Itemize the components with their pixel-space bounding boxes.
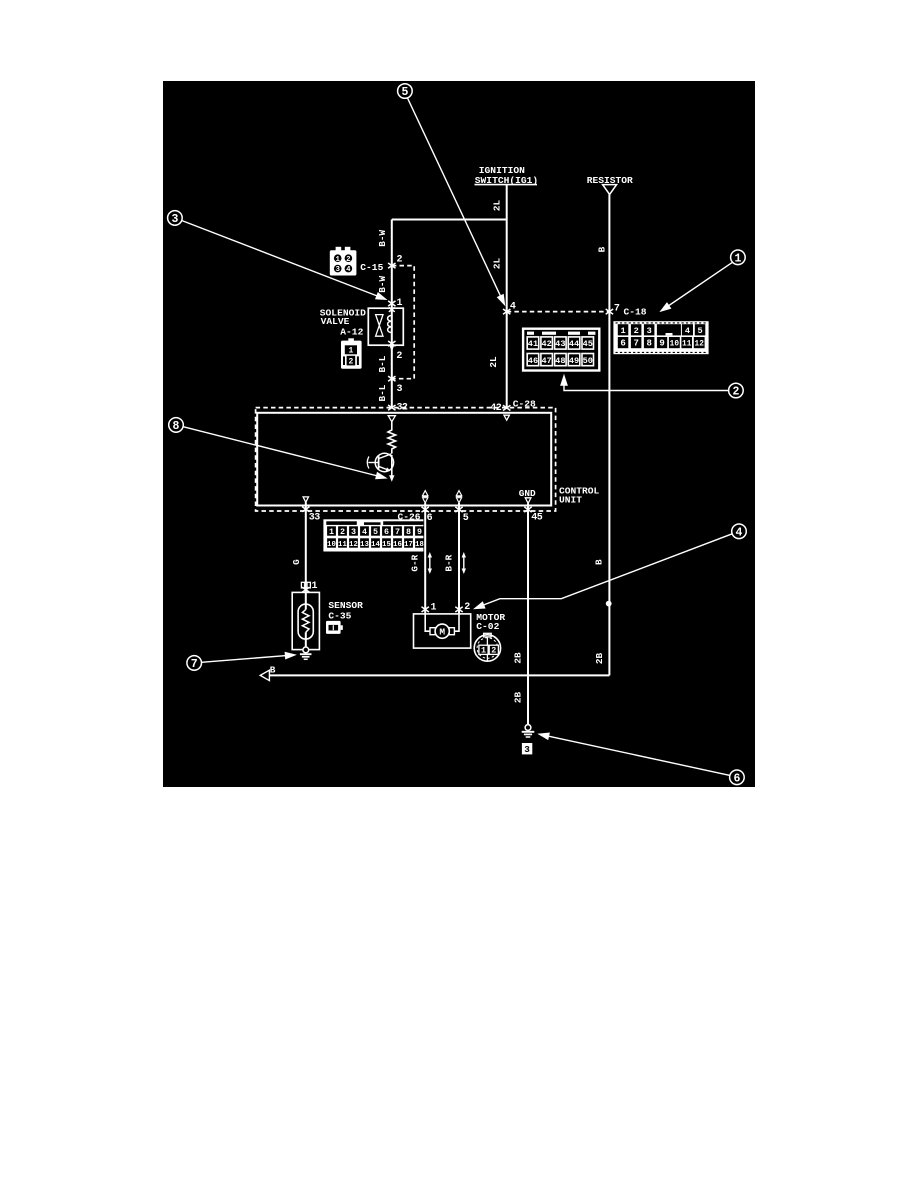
svg-text:13: 13	[360, 541, 369, 549]
svg-text:3: 3	[397, 384, 403, 395]
svg-text:2L: 2L	[492, 258, 503, 270]
svg-text:2: 2	[340, 527, 345, 537]
svg-text:8: 8	[406, 527, 411, 537]
svg-text:1: 1	[734, 253, 741, 266]
svg-text:5: 5	[463, 513, 469, 524]
svg-text:2B: 2B	[512, 652, 523, 664]
svg-text:46: 46	[528, 356, 538, 366]
svg-text:50: 50	[583, 356, 593, 366]
svg-text:B-L: B-L	[377, 355, 388, 372]
svg-text:1: 1	[312, 581, 318, 592]
svg-text:18: 18	[415, 541, 424, 549]
svg-text:7: 7	[191, 658, 198, 671]
svg-text:42: 42	[541, 339, 551, 349]
svg-text:12: 12	[695, 341, 705, 349]
svg-text:11: 11	[682, 341, 692, 349]
svg-text:4: 4	[346, 266, 351, 274]
svg-text:16: 16	[393, 541, 402, 549]
svg-text:1: 1	[620, 326, 625, 336]
svg-text:1: 1	[329, 527, 334, 537]
svg-text:2B: 2B	[594, 653, 605, 665]
svg-text:M: M	[439, 627, 445, 638]
svg-text:7: 7	[395, 527, 400, 537]
svg-text:3: 3	[335, 266, 340, 274]
svg-text:A-12: A-12	[340, 326, 363, 337]
svg-text:B: B	[596, 246, 607, 252]
svg-text:C-35: C-35	[328, 611, 351, 622]
svg-text:17: 17	[404, 541, 413, 549]
svg-text:SENSOR: SENSOR	[328, 600, 363, 611]
svg-text:8: 8	[646, 339, 651, 349]
svg-text:1: 1	[431, 603, 437, 614]
svg-text:1: 1	[335, 256, 340, 264]
svg-text:7: 7	[614, 303, 620, 314]
svg-text:B: B	[594, 559, 605, 565]
svg-text:5: 5	[401, 86, 408, 99]
svg-text:3: 3	[351, 527, 356, 537]
svg-text:B-W: B-W	[377, 229, 388, 246]
svg-text:4: 4	[736, 527, 743, 540]
svg-text:45: 45	[583, 339, 593, 349]
svg-text:10: 10	[327, 541, 336, 549]
svg-text:G: G	[291, 559, 302, 565]
svg-text:14: 14	[371, 541, 380, 549]
svg-text:B-W: B-W	[377, 275, 388, 292]
svg-text:12: 12	[349, 541, 358, 549]
svg-text:B-L: B-L	[377, 384, 388, 401]
svg-text:1: 1	[481, 646, 486, 656]
svg-text:C-18: C-18	[624, 306, 647, 317]
svg-text:3: 3	[171, 213, 178, 226]
svg-text:5: 5	[697, 326, 702, 336]
svg-text:2: 2	[396, 351, 402, 362]
svg-text:4: 4	[510, 302, 516, 313]
svg-text:B: B	[270, 664, 276, 675]
svg-text:42: 42	[490, 403, 501, 414]
svg-text:1: 1	[348, 347, 353, 356]
svg-text:4: 4	[362, 527, 367, 537]
svg-text:2: 2	[491, 646, 496, 656]
svg-text:5: 5	[373, 527, 378, 537]
svg-text:44: 44	[569, 339, 579, 349]
svg-text:2: 2	[634, 326, 639, 336]
svg-text:10: 10	[670, 341, 680, 349]
svg-text:49: 49	[569, 356, 579, 366]
svg-text:G-R: G-R	[410, 554, 421, 571]
svg-text:47: 47	[541, 356, 551, 366]
svg-text:8: 8	[173, 420, 180, 433]
svg-text:2: 2	[346, 256, 350, 264]
svg-text:3: 3	[647, 326, 652, 336]
svg-text:C-28: C-28	[513, 398, 536, 409]
svg-text:43: 43	[555, 339, 565, 349]
svg-text:41: 41	[528, 339, 538, 349]
svg-text:32: 32	[397, 403, 408, 414]
svg-text:33: 33	[309, 513, 320, 524]
svg-text:2: 2	[397, 255, 403, 266]
svg-text:48: 48	[555, 356, 565, 366]
svg-text:3: 3	[524, 744, 530, 755]
svg-text:9: 9	[417, 527, 422, 537]
svg-text:45: 45	[531, 513, 542, 524]
svg-text:15: 15	[382, 541, 391, 549]
svg-text:UNIT: UNIT	[559, 494, 582, 505]
svg-text:9: 9	[659, 339, 664, 349]
svg-text:B-R: B-R	[444, 554, 455, 571]
svg-text:4: 4	[685, 326, 690, 336]
svg-text:2L: 2L	[492, 200, 503, 212]
svg-text:11: 11	[338, 541, 347, 549]
svg-text:C-02: C-02	[476, 621, 499, 632]
svg-text:2: 2	[732, 386, 739, 399]
svg-text:6: 6	[620, 339, 625, 349]
svg-text:6: 6	[384, 527, 389, 537]
svg-text:6: 6	[733, 773, 740, 786]
svg-text:2B: 2B	[512, 692, 523, 704]
svg-text:2L: 2L	[488, 356, 499, 368]
svg-text:2: 2	[464, 602, 470, 613]
svg-text:C-15: C-15	[360, 262, 383, 273]
svg-text:2: 2	[348, 358, 353, 367]
svg-text:6: 6	[427, 513, 433, 524]
svg-text:7: 7	[633, 339, 638, 349]
svg-text:VALVE: VALVE	[321, 316, 350, 327]
